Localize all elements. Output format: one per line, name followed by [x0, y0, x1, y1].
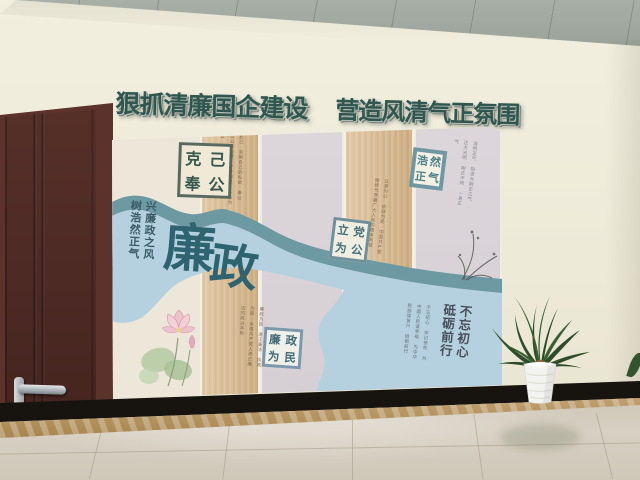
plant-pot [524, 362, 556, 404]
tile-grout-line [596, 413, 613, 479]
card-char: 浩 [416, 152, 429, 169]
card-char: 气 [427, 169, 440, 186]
card-char: 民 [284, 349, 297, 366]
card-char: 公 [350, 241, 363, 258]
card-char: 廉 [269, 331, 282, 348]
card-char: 为 [334, 239, 347, 256]
plant-reflection [500, 424, 580, 450]
wall-corner-shading [606, 40, 640, 400]
card-lianzheng-weimin: 廉 政 为 民 [262, 327, 304, 370]
calligraphy-note-lianzheng: 廉政为民 清正廉洁 执政为民 永葆共产党人清正廉洁的政治本色 [234, 305, 266, 370]
door-handle[interactable] [14, 377, 68, 399]
hallway-photo: 狠抓清廉国企建设营造风清气正氛围 廉政 兴廉政之风 树浩然正气 不忘初心 砥砺前… [0, 0, 640, 480]
plant-leaves-light [504, 296, 572, 369]
card-haoran-zhengqi: 浩 然 正 气 [409, 147, 448, 191]
lotus-flower [162, 310, 195, 333]
potted-plant [488, 288, 598, 413]
card-char: 克 [185, 146, 202, 171]
banner-text-left: 狠抓清廉国企建设 [115, 89, 308, 123]
tile-grout-line [473, 414, 483, 479]
title-char-zheng: 政 [206, 224, 263, 300]
calligraphy-note-buwang: 不忘初心 牢记使命 为中国人民谋幸福 为中华民族谋复兴 砥砺前行 [400, 303, 433, 363]
calligraphy-note-keji: 克己 克制自己的私欲 奉公 以公事为重 严于律己 一心为公 [215, 134, 246, 207]
tile-grout-line [352, 416, 353, 480]
bottom-right-vertical-slogan: 不忘初心 砥砺前行 [435, 303, 473, 366]
wall-banner: 狠抓清廉国企建设营造风清气正氛围 [115, 84, 536, 132]
wooden-door[interactable] [5, 109, 96, 409]
banner-text-right: 营造风清气正氛围 [335, 95, 520, 129]
lotus-painting [138, 308, 204, 390]
lianzheng-culture-wall: 廉政 兴廉政之风 树浩然正气 不忘初心 砥砺前行 克 己 奉 公 浩 然 正 气… [112, 126, 502, 402]
card-char: 然 [429, 153, 442, 170]
card-char: 奉 [184, 170, 201, 195]
handle-lever[interactable] [18, 384, 66, 395]
card-char: 党 [352, 223, 365, 240]
orchid-ink-painting [456, 222, 500, 282]
card-char: 正 [414, 168, 427, 185]
left-vertical-slogan: 兴廉政之风 树浩然正气 [124, 199, 158, 274]
card-char: 立 [336, 221, 349, 238]
main-title-lianzheng: 廉政 [162, 205, 267, 287]
card-char: 为 [267, 348, 280, 365]
card-char: 政 [285, 332, 298, 349]
